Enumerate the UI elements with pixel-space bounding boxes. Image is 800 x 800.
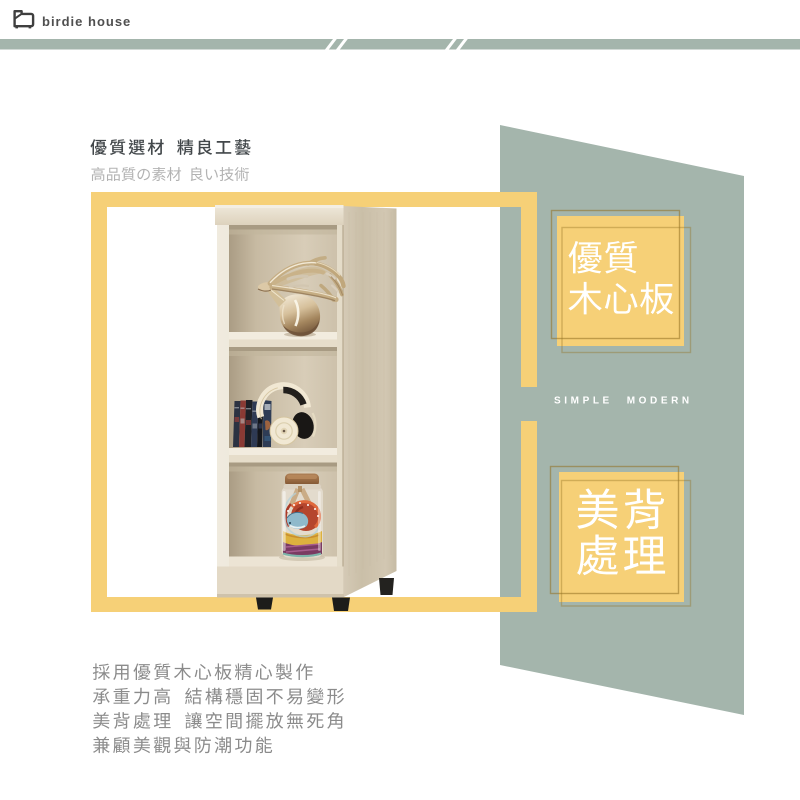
svg-text:SIMPLE MODERN: SIMPLE MODERN: [554, 396, 693, 407]
